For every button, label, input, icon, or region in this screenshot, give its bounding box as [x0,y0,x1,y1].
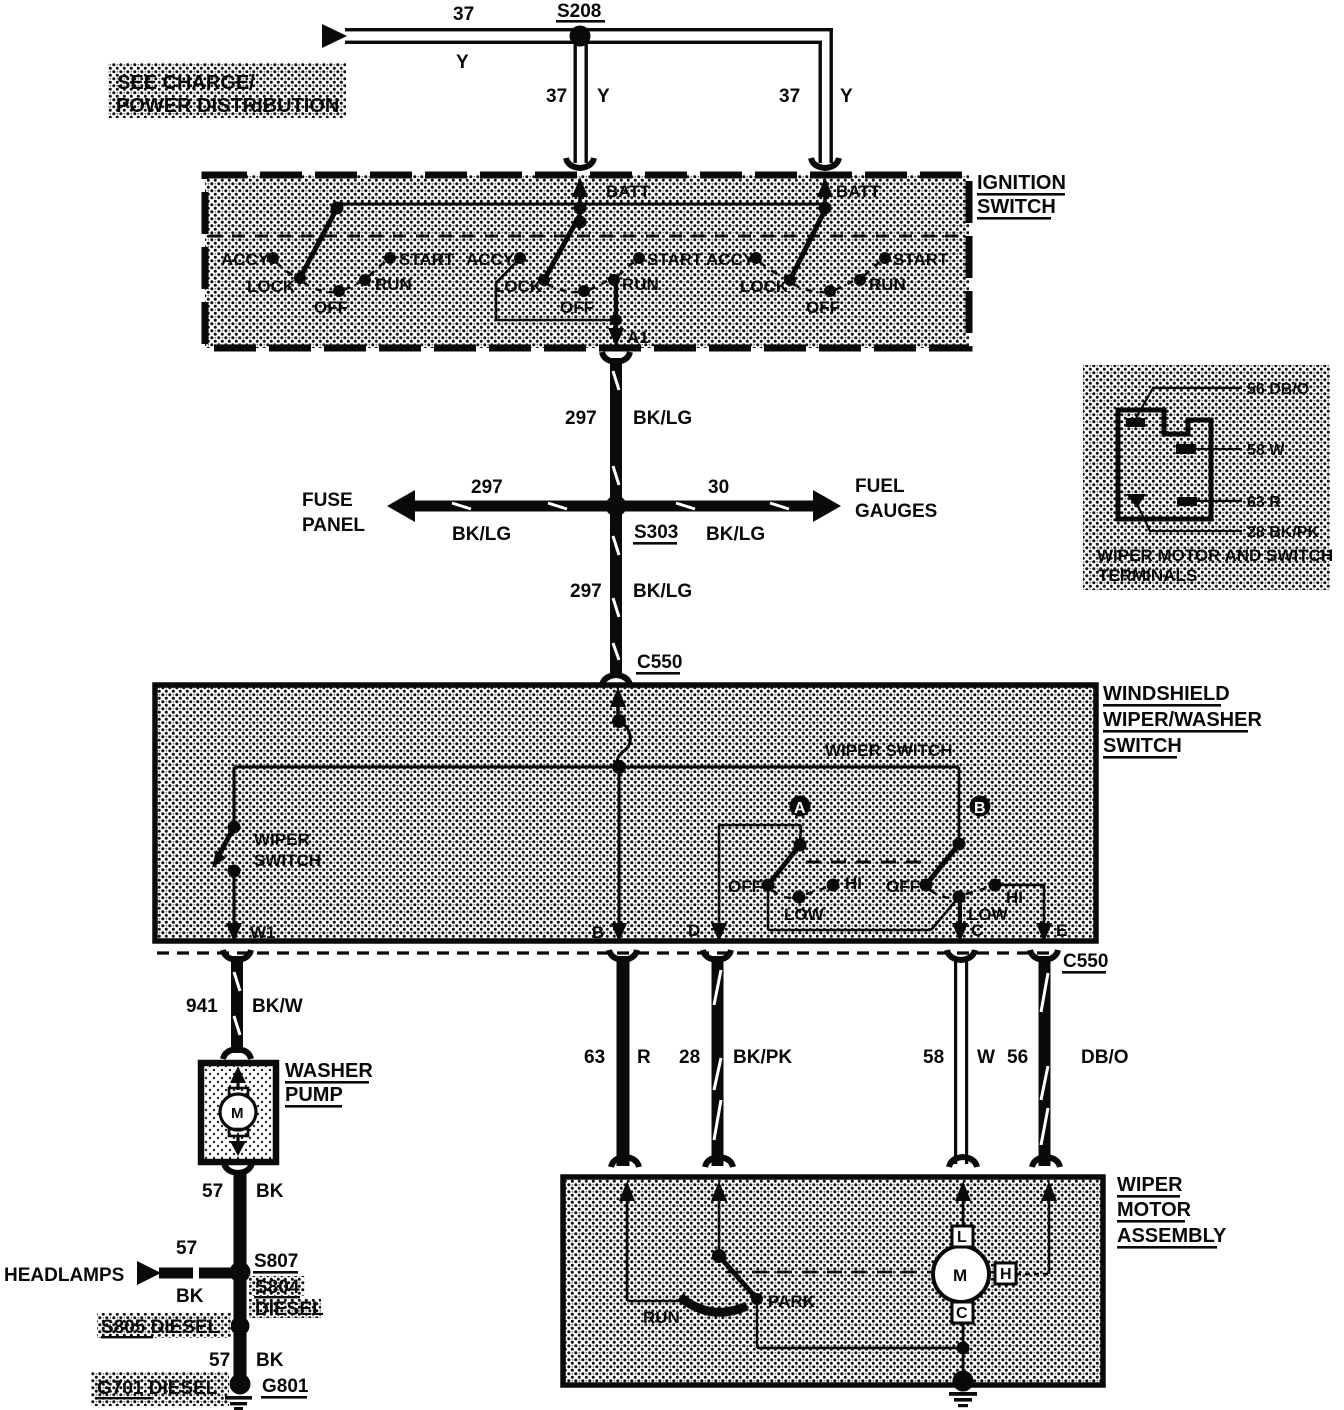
svg-text:S208: S208 [557,1,601,22]
svg-text:BATT: BATT [606,182,651,201]
svg-text:ACCY: ACCY [466,250,515,269]
svg-text:GAUGES: GAUGES [855,501,937,522]
svg-text:58 W: 58 W [1247,442,1285,459]
svg-text:SWITCH: SWITCH [977,196,1056,218]
svg-text:HEADLAMPS: HEADLAMPS [4,1265,124,1286]
svg-text:C550: C550 [637,652,682,673]
svg-text:B: B [592,923,604,942]
svg-text:HI: HI [1006,888,1023,907]
svg-text:BATT: BATT [836,182,881,201]
svg-text:BK/LG: BK/LG [633,581,692,602]
svg-text:H: H [1000,1266,1012,1283]
svg-text:ACCY: ACCY [706,250,755,269]
svg-text:MOTOR: MOTOR [1117,1199,1192,1221]
svg-text:POWER DISTRIBUTION: POWER DISTRIBUTION [116,95,339,117]
svg-text:C: C [971,921,983,940]
svg-text:TERMINALS: TERMINALS [1098,566,1197,585]
svg-text:R: R [637,1047,651,1068]
svg-text:56 DB/O: 56 DB/O [1247,381,1309,398]
svg-text:WIPER/WASHER: WIPER/WASHER [1103,709,1262,731]
svg-text:BK: BK [256,1181,284,1202]
svg-text:297: 297 [471,477,503,498]
svg-text:W1: W1 [250,923,276,942]
svg-text:DB/O: DB/O [1081,1047,1129,1068]
svg-text:OFF: OFF [314,298,348,317]
svg-text:56: 56 [1007,1047,1028,1068]
svg-text:RUN: RUN [643,1308,680,1327]
svg-text:S303: S303 [634,522,678,543]
svg-text:BK/LG: BK/LG [706,524,765,545]
svg-text:OFF: OFF [560,298,594,317]
svg-text:SEE CHARGE/: SEE CHARGE/ [117,72,255,94]
svg-text:OFF: OFF [806,298,840,317]
svg-text:Y: Y [840,86,853,107]
svg-text:W: W [977,1047,995,1068]
svg-text:Y: Y [597,86,610,107]
svg-text:START: START [893,250,949,269]
svg-text:SWITCH: SWITCH [1103,735,1182,757]
svg-text:A1: A1 [627,328,649,347]
svg-text:S805 DIESEL: S805 DIESEL [101,1317,220,1338]
svg-text:M: M [953,1266,967,1285]
svg-text:28 BK/PK: 28 BK/PK [1247,524,1319,541]
svg-text:37: 37 [453,4,474,25]
svg-text:WASHER: WASHER [285,1060,373,1082]
svg-text:RUN: RUN [622,275,659,294]
svg-text:BK/W: BK/W [252,996,303,1017]
svg-text:37: 37 [546,86,567,107]
svg-text:WIPER: WIPER [1117,1174,1183,1196]
svg-text:D: D [688,921,700,940]
svg-text:ACCY: ACCY [221,250,270,269]
svg-text:START: START [647,250,703,269]
svg-text:IGNITION: IGNITION [977,172,1066,194]
svg-text:OFF: OFF [886,877,920,896]
svg-text:LOW: LOW [784,905,825,924]
svg-text:G701 DIESEL: G701 DIESEL [97,1378,218,1399]
svg-text:L: L [957,1229,967,1246]
svg-text:OFF: OFF [728,877,762,896]
svg-text:LOCK: LOCK [247,277,296,296]
svg-text:PUMP: PUMP [285,1084,343,1106]
svg-text:SWITCH: SWITCH [254,851,321,870]
svg-text:37: 37 [779,86,800,107]
svg-text:FUSE: FUSE [302,490,353,511]
svg-text:58: 58 [923,1047,944,1068]
svg-text:B: B [974,800,986,817]
svg-text:BK/LG: BK/LG [452,524,511,545]
svg-text:S804: S804 [255,1277,300,1298]
svg-text:BK: BK [176,1286,204,1307]
svg-text:RUN: RUN [375,275,412,294]
svg-text:LOCK: LOCK [494,277,543,296]
svg-text:START: START [399,250,455,269]
svg-text:57: 57 [176,1238,197,1259]
svg-text:297: 297 [565,408,597,429]
svg-text:RUN: RUN [869,275,906,294]
svg-text:ASSEMBLY: ASSEMBLY [1117,1225,1227,1247]
svg-text:63 R: 63 R [1247,494,1281,511]
svg-text:BK/PK: BK/PK [733,1047,792,1068]
svg-text:297: 297 [570,581,602,602]
svg-text:57: 57 [202,1181,223,1202]
svg-text:30: 30 [708,477,729,498]
svg-text:BK: BK [256,1350,284,1371]
svg-text:WIPER: WIPER [254,830,310,849]
svg-text:WINDSHIELD: WINDSHIELD [1103,683,1230,705]
svg-text:WIPER MOTOR AND SWITCH: WIPER MOTOR AND SWITCH [1097,546,1333,565]
svg-text:G801: G801 [262,1376,309,1397]
svg-text:57: 57 [209,1350,230,1371]
svg-text:PARK: PARK [768,1292,816,1311]
svg-text:A: A [794,800,806,817]
svg-text:C: C [956,1305,968,1322]
svg-text:941: 941 [186,996,218,1017]
svg-text:FUEL: FUEL [855,476,905,497]
svg-text:LOCK: LOCK [740,277,789,296]
svg-text:C550: C550 [1063,951,1108,972]
svg-text:M: M [231,1105,244,1122]
svg-text:E: E [1056,921,1067,940]
svg-text:S807: S807 [254,1251,298,1272]
svg-text:DIESEL: DIESEL [255,1299,324,1320]
svg-text:HI: HI [845,874,862,893]
svg-text:63: 63 [584,1047,605,1068]
svg-text:WIPER SWITCH: WIPER SWITCH [825,741,953,760]
svg-text:BK/LG: BK/LG [633,408,692,429]
svg-text:28: 28 [679,1047,700,1068]
svg-text:Y: Y [456,52,469,73]
svg-text:PANEL: PANEL [302,515,365,536]
